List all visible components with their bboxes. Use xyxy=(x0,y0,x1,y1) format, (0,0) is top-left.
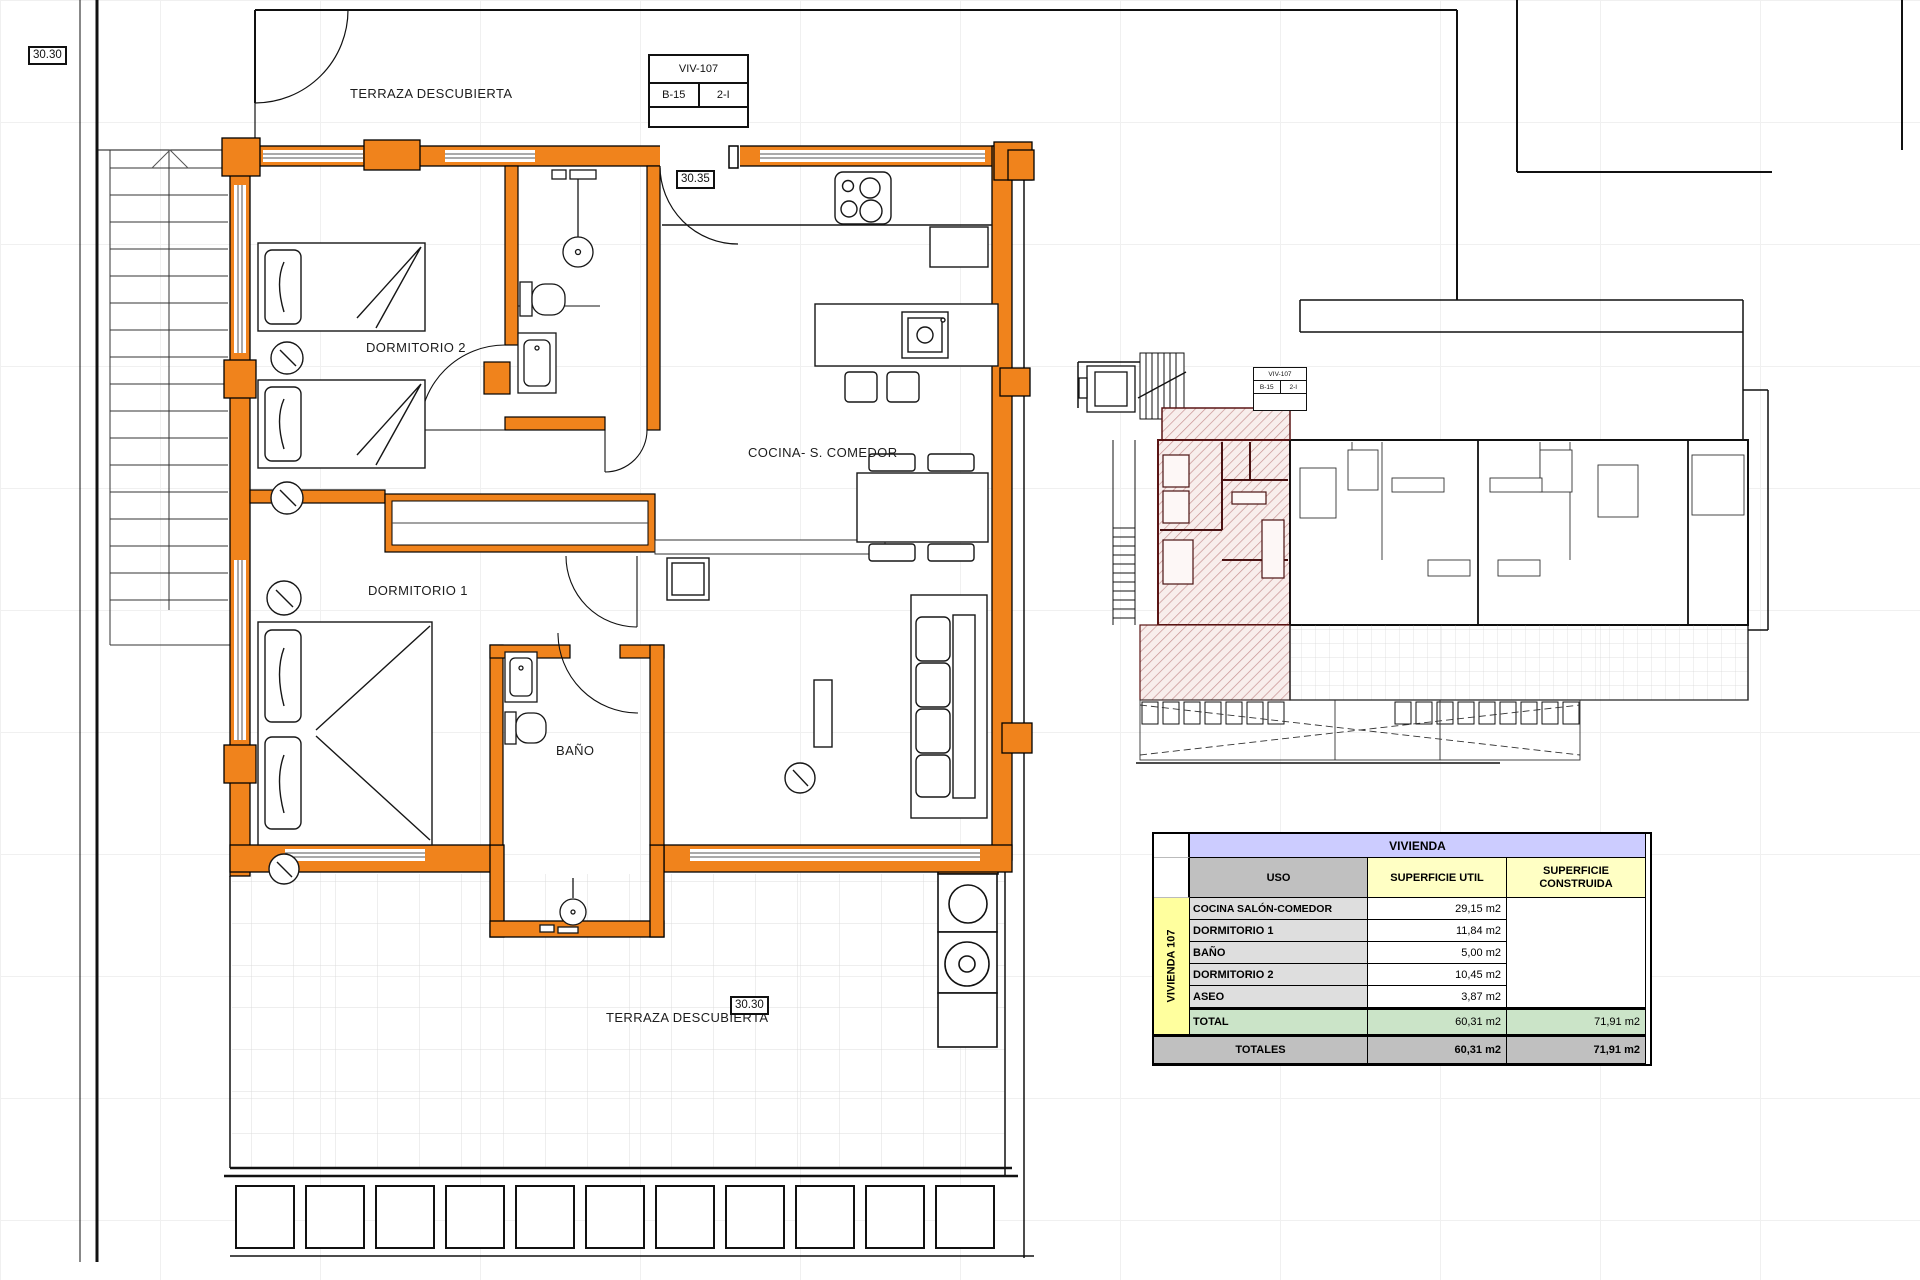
row-value: 10,45 m2 xyxy=(1368,964,1507,986)
totales-construida: 71,91 m2 xyxy=(1507,1035,1646,1064)
side-label-text: VIVIENDA 107 xyxy=(1166,930,1178,1003)
row-value: 29,15 m2 xyxy=(1368,898,1507,920)
mini-title-block: VIV-107 B-15 2-I xyxy=(1253,367,1307,411)
table-title: VIVIENDA xyxy=(1190,834,1646,858)
label-terraza-top: TERRAZA DESCUBIERTA xyxy=(350,86,512,101)
row-value: 5,00 m2 xyxy=(1368,942,1507,964)
wardrobe xyxy=(385,494,885,554)
table-corner xyxy=(1154,858,1190,898)
bedroom1-furniture xyxy=(258,581,432,884)
dining-living-furniture xyxy=(667,454,988,818)
row-label: DORMITORIO 1 xyxy=(1190,920,1368,942)
level-value: 30.35 xyxy=(681,173,710,185)
level-value: 30.30 xyxy=(33,49,62,61)
title-block-building: B-15 xyxy=(650,84,700,106)
level-tag-bottom: 30.30 xyxy=(730,996,769,1015)
bedroom2-furniture xyxy=(258,243,425,514)
row-value: 11,84 m2 xyxy=(1368,920,1507,942)
level-tag-entry: 30.35 xyxy=(676,170,715,189)
label-dormitorio1: DORMITORIO 1 xyxy=(368,583,468,598)
floor-plan-drawing xyxy=(0,0,1920,1280)
title-block: VIV-107 B-15 2-I xyxy=(648,54,749,128)
terrace-door-arc xyxy=(255,10,348,103)
table-side-label: VIVIENDA 107 xyxy=(1154,898,1190,1035)
level-tag-top-left: 30.30 xyxy=(28,46,67,65)
mini-title-unit: VIV-107 xyxy=(1254,368,1306,381)
total-util: 60,31 m2 xyxy=(1368,1008,1507,1035)
label-dormitorio2: DORMITORIO 2 xyxy=(366,340,466,355)
mini-title-building: B-15 xyxy=(1254,381,1281,393)
entry-door xyxy=(660,144,740,244)
terrace-bbq-corner xyxy=(938,860,998,1047)
floor-plan-sheet: 30.30 30.35 30.30 TERRAZA DESCUBIERTA DO… xyxy=(0,0,1920,1280)
row-label: DORMITORIO 2 xyxy=(1190,964,1368,986)
level-value: 30.30 xyxy=(735,999,764,1011)
col-header-util: SUPERFICIE UTIL xyxy=(1368,858,1507,898)
row-value: 3,87 m2 xyxy=(1368,986,1507,1008)
col-header-construida: SUPERFICIE CONSTRUIDA xyxy=(1507,858,1646,898)
title-block-unit: VIV-107 xyxy=(650,56,747,84)
bottom-terrace xyxy=(224,860,1034,1256)
row-label: COCINA SALÓN-COMEDOR xyxy=(1190,898,1368,920)
construida-merged-cell xyxy=(1507,898,1646,1008)
kitchen-furniture xyxy=(662,172,998,402)
title-block-floor: 2-I xyxy=(700,84,748,106)
totales-label: TOTALES xyxy=(1154,1035,1368,1064)
col-header-uso: USO xyxy=(1190,858,1368,898)
totales-util: 60,31 m2 xyxy=(1368,1035,1507,1064)
total-construida: 71,91 m2 xyxy=(1507,1008,1646,1035)
mini-site-plan xyxy=(1078,300,1768,763)
total-label: TOTAL xyxy=(1190,1008,1368,1035)
row-label: BAÑO xyxy=(1190,942,1368,964)
planter-row xyxy=(236,1186,994,1248)
mini-title-floor: 2-I xyxy=(1281,381,1307,393)
label-bano: BAÑO xyxy=(556,743,594,758)
table-corner xyxy=(1154,834,1190,858)
stairs xyxy=(110,150,230,645)
label-cocina: COCINA- S. COMEDOR xyxy=(748,445,897,460)
aseo-fixtures xyxy=(518,170,600,393)
areas-table: VIVIENDA USO SUPERFICIE UTIL SUPERFICIE … xyxy=(1152,832,1652,1066)
row-label: ASEO xyxy=(1190,986,1368,1008)
